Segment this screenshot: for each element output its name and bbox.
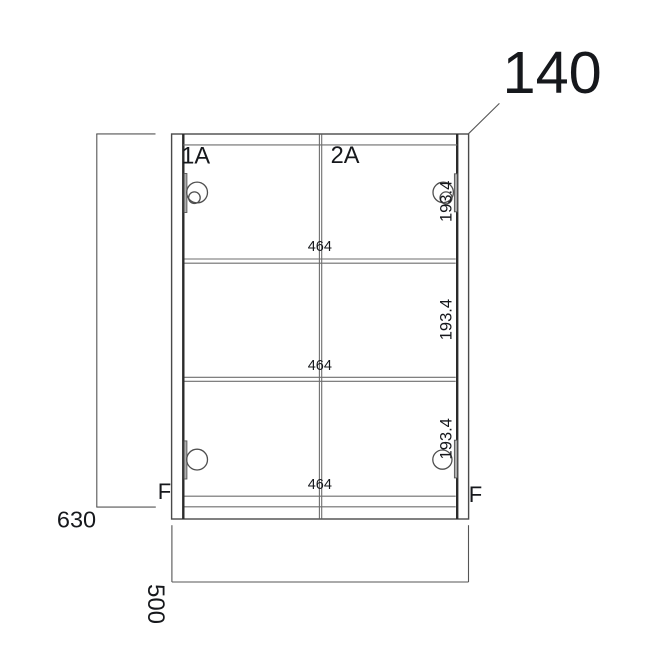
svg-text:464: 464 xyxy=(308,477,332,493)
svg-text:464: 464 xyxy=(308,239,332,255)
svg-text:140: 140 xyxy=(503,39,602,106)
svg-text:464: 464 xyxy=(308,358,332,374)
svg-text:500: 500 xyxy=(142,584,169,624)
svg-text:193.4: 193.4 xyxy=(437,181,455,222)
svg-text:630: 630 xyxy=(57,506,96,532)
svg-text:1A: 1A xyxy=(181,143,210,169)
svg-text:2A: 2A xyxy=(331,143,360,169)
svg-text:F: F xyxy=(158,479,171,504)
svg-text:F: F xyxy=(469,482,482,507)
svg-text:193.4: 193.4 xyxy=(437,299,455,340)
svg-text:193.4: 193.4 xyxy=(437,418,455,459)
